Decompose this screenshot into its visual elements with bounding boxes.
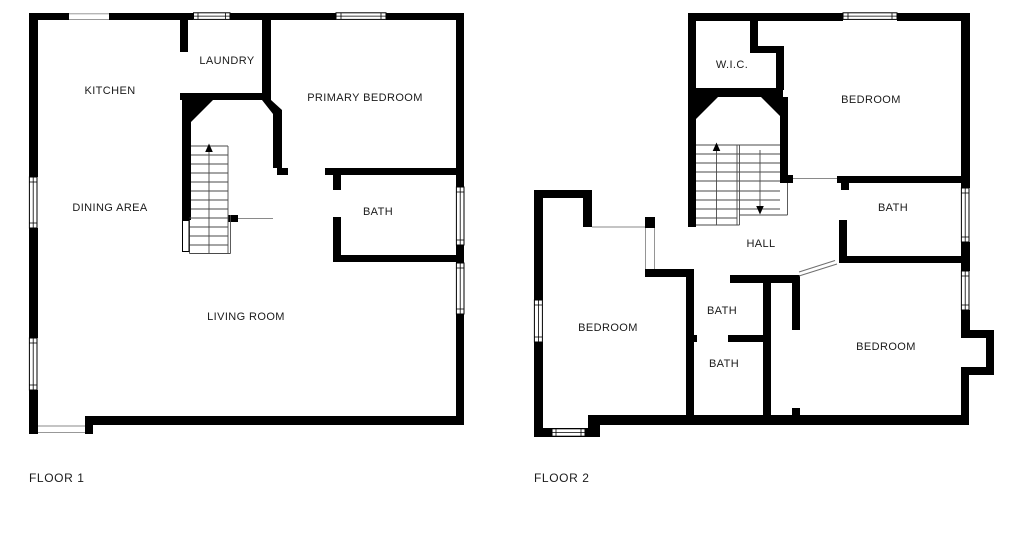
stair-treads	[696, 145, 788, 225]
room-label-bath-right: BATH	[878, 202, 908, 214]
room-label-laundry: LAUNDRY	[199, 55, 254, 67]
floor2-walls	[534, 13, 994, 437]
window-icon	[961, 188, 969, 242]
floorplan-canvas: KITCHEN LAUNDRY PRIMARY BEDROOM DINING A…	[0, 0, 1024, 554]
room-label-bedroom-left: BEDROOM	[578, 322, 638, 334]
room-label-wic: W.I.C.	[716, 59, 748, 71]
window-icon	[29, 338, 37, 390]
window-icon	[961, 271, 969, 310]
stairs-up-arrow-icon	[205, 144, 213, 153]
room-label-dining-area: DINING AREA	[72, 202, 148, 214]
room-label-primary-bedroom: PRIMARY BEDROOM	[307, 92, 423, 104]
floorplan-svg: KITCHEN LAUNDRY PRIMARY BEDROOM DINING A…	[0, 0, 1024, 554]
stair-railing	[183, 221, 190, 252]
room-label-bath-lower: BATH	[709, 358, 739, 370]
window-icon	[552, 429, 585, 436]
window-icon	[456, 187, 464, 245]
room-label-hall: HALL	[746, 238, 775, 250]
window-icon	[456, 263, 464, 314]
window-icon	[336, 13, 386, 20]
window-icon	[194, 13, 231, 20]
floor2-windows	[534, 13, 969, 436]
floor1-walls	[29, 13, 464, 434]
room-label-bedroom-top-right: BEDROOM	[841, 94, 901, 106]
floor1-openings	[38, 14, 273, 433]
stair-treads	[190, 146, 231, 254]
floor2-title: FLOOR 2	[534, 471, 590, 485]
window-icon	[29, 177, 37, 228]
window-icon	[843, 13, 897, 20]
floor1-title: FLOOR 1	[29, 471, 85, 485]
floor2-openings	[592, 179, 837, 277]
room-label-living-room: LIVING ROOM	[207, 311, 285, 323]
floor1-plan: KITCHEN LAUNDRY PRIMARY BEDROOM DINING A…	[29, 13, 464, 485]
stairs-down-arrow-icon	[756, 206, 764, 215]
room-label-bedroom-bottom-right: BEDROOM	[856, 341, 916, 353]
room-label-bath: BATH	[363, 206, 393, 218]
room-label-bath-upper: BATH	[707, 305, 737, 317]
stairs-up-arrow-icon	[713, 143, 721, 152]
room-label-kitchen: KITCHEN	[84, 85, 135, 97]
window-icon	[534, 300, 542, 342]
floor2-stairs	[696, 143, 788, 226]
door-leaf-icon	[799, 261, 837, 277]
floor2-plan: W.I.C. BEDROOM BATH HALL BEDROOM BATH BA…	[534, 13, 994, 485]
